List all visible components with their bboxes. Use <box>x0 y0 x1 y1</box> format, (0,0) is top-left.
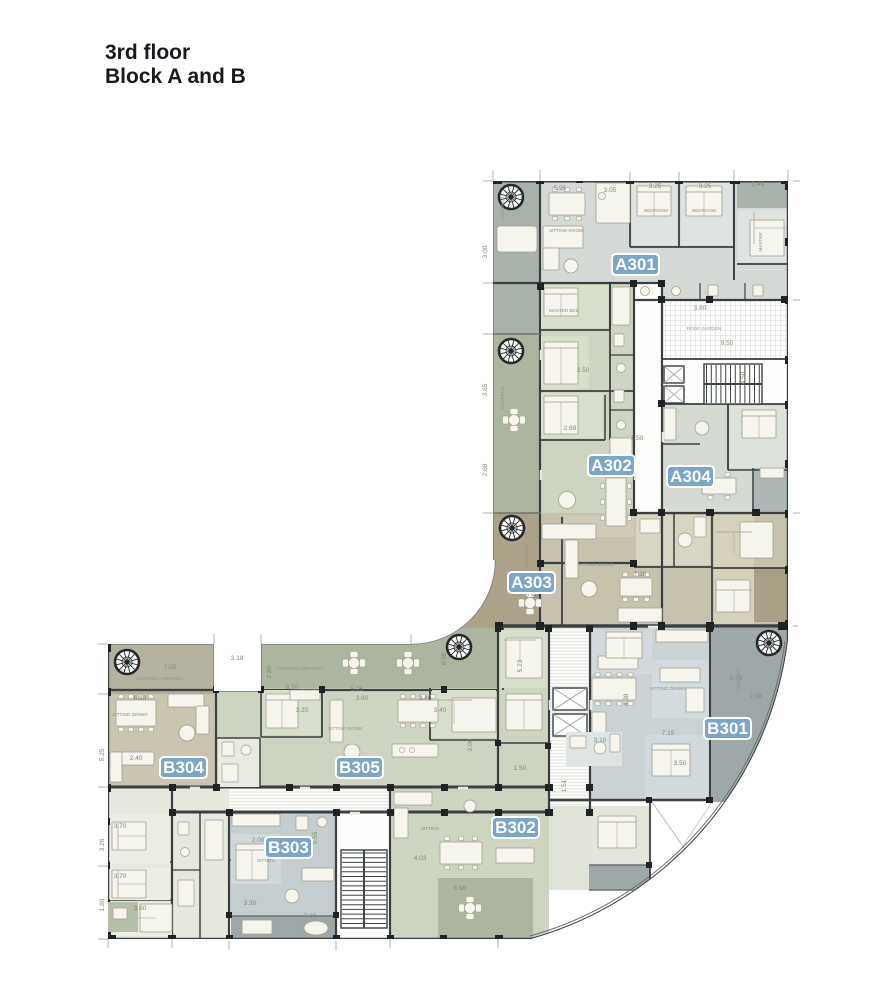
svg-text:1.50: 1.50 <box>631 435 644 442</box>
svg-text:3.05: 3.05 <box>604 187 617 194</box>
svg-text:3.40: 3.40 <box>419 695 432 702</box>
svg-text:ROOF GARDEN: ROOF GARDEN <box>687 326 721 331</box>
svg-text:3rd floor: 3rd floor <box>105 41 190 64</box>
svg-text:2.80: 2.80 <box>266 665 273 678</box>
svg-text:B303: B303 <box>268 838 309 857</box>
svg-text:3.49: 3.49 <box>752 181 765 188</box>
svg-text:3.10: 3.10 <box>594 737 607 744</box>
svg-text:MASTER: MASTER <box>758 232 763 252</box>
svg-text:2.00: 2.00 <box>252 837 265 844</box>
svg-text:3.30: 3.30 <box>244 900 257 907</box>
svg-text:BEDROOM: BEDROOM <box>644 208 668 213</box>
svg-text:3.70: 3.70 <box>114 823 127 830</box>
svg-text:2.08: 2.08 <box>467 738 474 751</box>
svg-text:COVERED: COVERED <box>500 386 505 409</box>
svg-text:COVERED: COVERED <box>524 544 529 567</box>
svg-text:6.20: 6.20 <box>286 684 299 691</box>
svg-text:SITTING ROOM: SITTING ROOM <box>549 228 583 233</box>
svg-text:3.25: 3.25 <box>699 183 712 190</box>
svg-text:2.50: 2.50 <box>526 593 539 600</box>
svg-text:1.50: 1.50 <box>514 765 527 772</box>
svg-text:6.98: 6.98 <box>454 885 467 892</box>
svg-text:7.30: 7.30 <box>634 571 647 578</box>
svg-text:B305: B305 <box>339 758 380 777</box>
svg-text:3.50: 3.50 <box>577 367 590 374</box>
svg-text:3.60: 3.60 <box>356 695 369 702</box>
svg-text:4.38: 4.38 <box>623 693 630 706</box>
svg-text:5.95: 5.95 <box>554 185 567 192</box>
svg-text:B302: B302 <box>495 818 536 837</box>
svg-text:B304: B304 <box>163 758 204 777</box>
svg-text:COVERED VERANDA: COVERED VERANDA <box>277 666 324 671</box>
svg-text:COVERED: COVERED <box>736 668 741 691</box>
svg-text:3.25: 3.25 <box>296 707 309 714</box>
svg-text:5.55: 5.55 <box>312 831 319 844</box>
svg-text:9.50: 9.50 <box>721 340 734 347</box>
svg-text:8.98: 8.98 <box>441 652 448 665</box>
svg-text:COVERED: COVERED <box>500 196 505 219</box>
svg-text:SITTING ROOM: SITTING ROOM <box>328 726 362 731</box>
svg-text:A304: A304 <box>670 467 711 486</box>
svg-text:3.40: 3.40 <box>434 707 447 714</box>
svg-text:3.26: 3.26 <box>99 838 106 851</box>
svg-text:B301: B301 <box>707 719 748 738</box>
svg-text:SITTING DINING: SITTING DINING <box>578 562 614 567</box>
svg-text:3.00: 3.00 <box>482 245 489 258</box>
svg-text:2.69: 2.69 <box>564 425 577 432</box>
svg-text:A302: A302 <box>591 456 632 475</box>
svg-text:3.18: 3.18 <box>231 655 244 662</box>
svg-text:1.80: 1.80 <box>99 898 106 911</box>
svg-text:3.70: 3.70 <box>114 873 127 880</box>
svg-text:3.60: 3.60 <box>694 305 707 312</box>
svg-text:SITTING: SITTING <box>421 826 440 831</box>
svg-text:5.25: 5.25 <box>99 748 106 761</box>
svg-text:A301: A301 <box>615 255 656 274</box>
svg-text:SITTING DINING: SITTING DINING <box>112 712 148 717</box>
svg-text:7.15: 7.15 <box>662 730 675 737</box>
svg-text:3.60: 3.60 <box>134 905 147 912</box>
svg-text:1.51: 1.51 <box>561 779 568 792</box>
svg-text:3.50: 3.50 <box>674 760 687 767</box>
svg-text:5.25: 5.25 <box>351 686 364 693</box>
svg-text:Block A and B: Block A and B <box>105 65 246 88</box>
svg-text:4.03: 4.03 <box>414 855 427 862</box>
svg-text:MASTER BED: MASTER BED <box>549 308 580 313</box>
svg-text:6.83: 6.83 <box>134 695 147 702</box>
svg-text:2.60: 2.60 <box>482 463 489 476</box>
svg-text:BEDROOM: BEDROOM <box>692 208 716 213</box>
svg-text:3.25: 3.25 <box>649 183 662 190</box>
svg-text:2.40: 2.40 <box>130 755 143 762</box>
svg-text:4.50: 4.50 <box>740 371 747 384</box>
svg-text:COVERED VERANDA: COVERED VERANDA <box>137 676 184 681</box>
svg-text:2.08: 2.08 <box>750 693 763 700</box>
svg-text:A303: A303 <box>511 573 552 592</box>
svg-text:7.05: 7.05 <box>164 664 177 671</box>
svg-text:SITTING DINING: SITTING DINING <box>650 686 686 691</box>
svg-text:5.23: 5.23 <box>517 659 524 672</box>
svg-text:7.60: 7.60 <box>304 913 317 920</box>
svg-text:3.65: 3.65 <box>482 383 489 396</box>
